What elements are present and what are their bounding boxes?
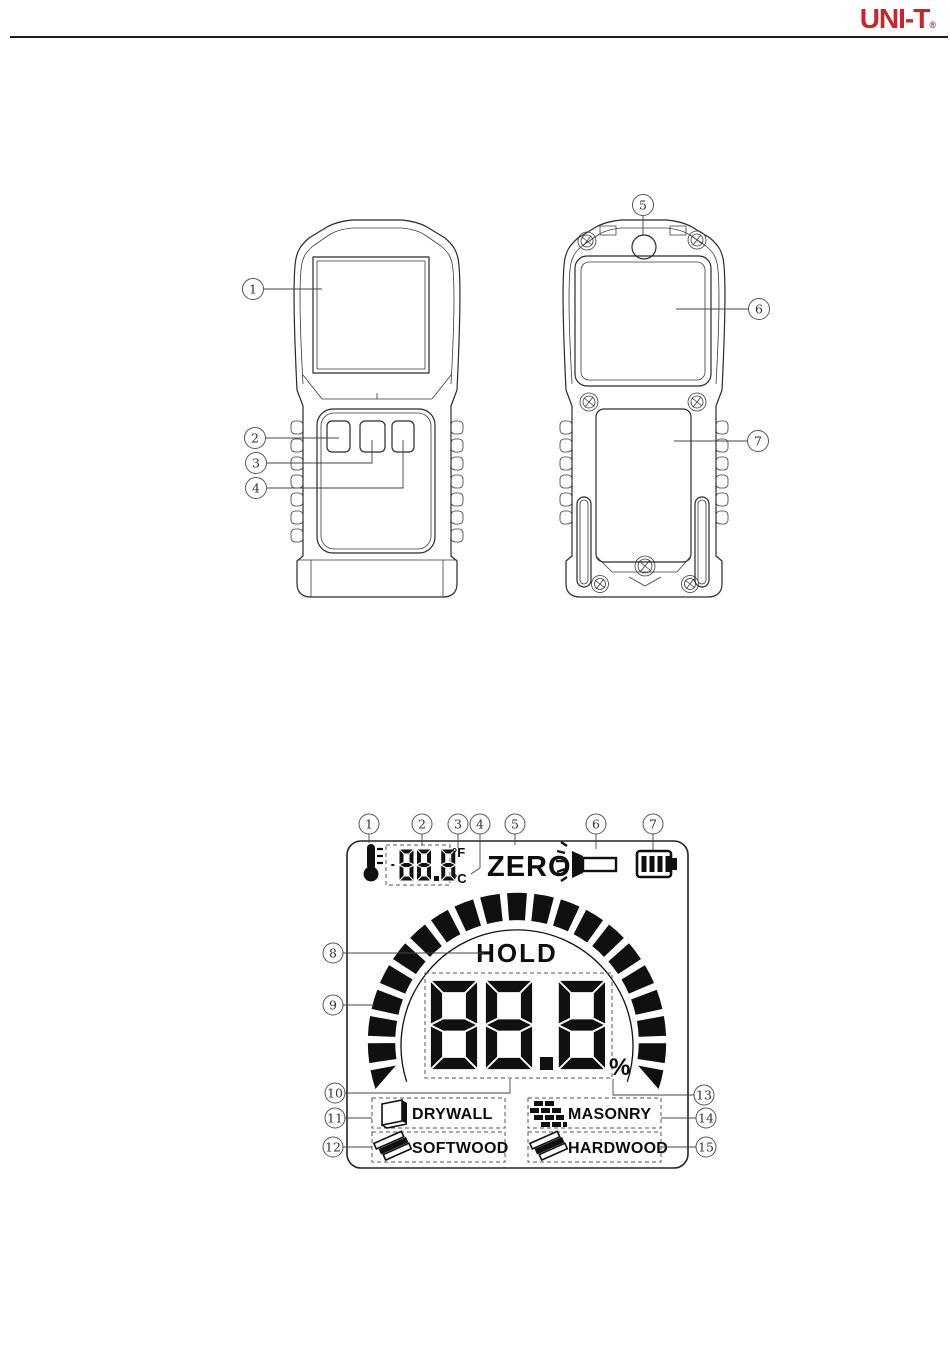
uni-t-logo: UNI-T® bbox=[860, 5, 936, 33]
callout-masonry: 14 bbox=[696, 1108, 716, 1128]
main-display-digits bbox=[430, 980, 606, 1070]
svg-text:7: 7 bbox=[754, 434, 762, 449]
drywall-label: DRYWALL bbox=[412, 1106, 493, 1123]
callout-battery: 7 bbox=[643, 814, 663, 834]
svg-text:4: 4 bbox=[476, 817, 484, 832]
back-sensor-panel bbox=[575, 256, 711, 386]
masonry-label: MASONRY bbox=[568, 1106, 651, 1123]
back-inner-outline bbox=[569, 228, 719, 384]
svg-text:9: 9 bbox=[329, 998, 337, 1013]
callout-drywall: 11 bbox=[325, 1108, 345, 1128]
device-diagram: 1 2 3 4 5 6 7 bbox=[230, 190, 790, 610]
lcd-top-callouts: 1 2 3 4 5 6 7 bbox=[359, 814, 663, 834]
back-sensor-panel-inner bbox=[581, 262, 705, 380]
callout-percent: 13 bbox=[694, 1085, 714, 1105]
callout-back-flashlight: 5 bbox=[633, 195, 654, 216]
callout-hold: 8 bbox=[323, 943, 343, 963]
svg-text:1: 1 bbox=[249, 282, 257, 297]
svg-text:6: 6 bbox=[755, 302, 763, 317]
screw-top-left bbox=[578, 232, 596, 250]
lcd-right-callouts: 13 14 15 bbox=[694, 1085, 716, 1157]
front-bezel-outline bbox=[300, 228, 454, 384]
back-grip-ribs bbox=[560, 421, 728, 524]
svg-text:13: 13 bbox=[696, 1088, 712, 1103]
back-top-notch-right bbox=[670, 226, 686, 235]
svg-text:8: 8 bbox=[329, 946, 337, 961]
svg-text:6: 6 bbox=[592, 817, 600, 832]
callout-fahrenheit: 3 bbox=[448, 814, 468, 834]
callout-celsius: 4 bbox=[470, 814, 490, 834]
callout-temp-digits: 2 bbox=[412, 814, 432, 834]
svg-text:14: 14 bbox=[698, 1111, 714, 1126]
front-bezel-bottom bbox=[303, 375, 451, 399]
hardwood-label: HARDWOOD bbox=[568, 1140, 668, 1157]
screw-mid-left bbox=[580, 393, 598, 411]
front-display-screen-inner bbox=[317, 261, 425, 369]
callout-front-button-left: 2 bbox=[245, 428, 266, 449]
front-button-left bbox=[327, 421, 350, 452]
back-battery-cover bbox=[596, 409, 691, 562]
front-display-screen bbox=[313, 257, 429, 373]
callout-flashlight: 6 bbox=[586, 814, 606, 834]
svg-text:12: 12 bbox=[325, 1140, 341, 1155]
screw-top-right bbox=[688, 231, 706, 249]
manual-page: UNI-T® bbox=[0, 0, 950, 1369]
registered-mark: ® bbox=[929, 20, 936, 30]
lcd-left-callouts: 8 9 10 11 12 bbox=[323, 943, 345, 1157]
device-back-view bbox=[560, 220, 728, 597]
device-front-view bbox=[291, 220, 463, 597]
callout-main-digits: 10 bbox=[325, 1083, 345, 1103]
svg-text:2: 2 bbox=[251, 431, 259, 446]
hold-indicator: HOLD bbox=[476, 938, 558, 968]
softwood-icon bbox=[374, 1130, 411, 1161]
svg-text:1: 1 bbox=[365, 817, 373, 832]
zero-indicator: ZERO bbox=[487, 851, 572, 883]
logo-text: UNI-T bbox=[860, 3, 930, 34]
svg-text:15: 15 bbox=[698, 1140, 714, 1155]
battery-icon bbox=[637, 851, 677, 877]
callout-hardwood: 15 bbox=[696, 1137, 716, 1157]
svg-text:2: 2 bbox=[418, 817, 426, 832]
callout-front-button-right: 4 bbox=[246, 478, 267, 499]
callout-back-sensor-panel: 6 bbox=[749, 299, 770, 320]
screw-bottom-left bbox=[592, 576, 609, 593]
callout-thermometer: 1 bbox=[359, 814, 379, 834]
front-keypad-panel bbox=[317, 409, 435, 553]
callout-bar-graph: 9 bbox=[323, 995, 343, 1015]
front-button-middle bbox=[360, 421, 385, 452]
svg-text:3: 3 bbox=[454, 817, 462, 832]
back-bottom-trim bbox=[596, 556, 691, 586]
svg-text:10: 10 bbox=[327, 1086, 343, 1101]
percent-unit: % bbox=[609, 1054, 630, 1081]
front-base-lines bbox=[297, 560, 457, 597]
hardwood-icon bbox=[530, 1130, 567, 1161]
lcd-diagram: 1 2 3 4 5 6 7 °F °C ZERO bbox=[320, 800, 720, 1190]
svg-text:3: 3 bbox=[252, 456, 260, 471]
callout-front-button-middle: 3 bbox=[246, 453, 267, 474]
svg-text:7: 7 bbox=[649, 817, 657, 832]
svg-text:11: 11 bbox=[327, 1111, 343, 1126]
header-rule bbox=[10, 36, 948, 38]
callout-front-screen: 1 bbox=[243, 279, 264, 300]
callout-zero: 5 bbox=[505, 814, 525, 834]
temp-display-digits bbox=[389, 849, 456, 881]
masonry-icon bbox=[530, 1101, 567, 1127]
softwood-label: SOFTWOOD bbox=[412, 1140, 509, 1157]
callout-back-battery-cover: 7 bbox=[748, 431, 769, 452]
callout-softwood: 12 bbox=[323, 1137, 343, 1157]
svg-text:5: 5 bbox=[511, 817, 519, 832]
svg-text:4: 4 bbox=[252, 481, 260, 496]
screw-mid-right bbox=[688, 393, 706, 411]
drywall-icon bbox=[382, 1100, 407, 1128]
screw-bottom-center bbox=[635, 556, 655, 576]
fahrenheit-unit: °F bbox=[452, 845, 465, 860]
back-side-clips bbox=[577, 497, 709, 587]
thermometer-icon bbox=[364, 844, 384, 882]
svg-text:5: 5 bbox=[639, 198, 647, 213]
celsius-unit: °C bbox=[452, 871, 467, 886]
